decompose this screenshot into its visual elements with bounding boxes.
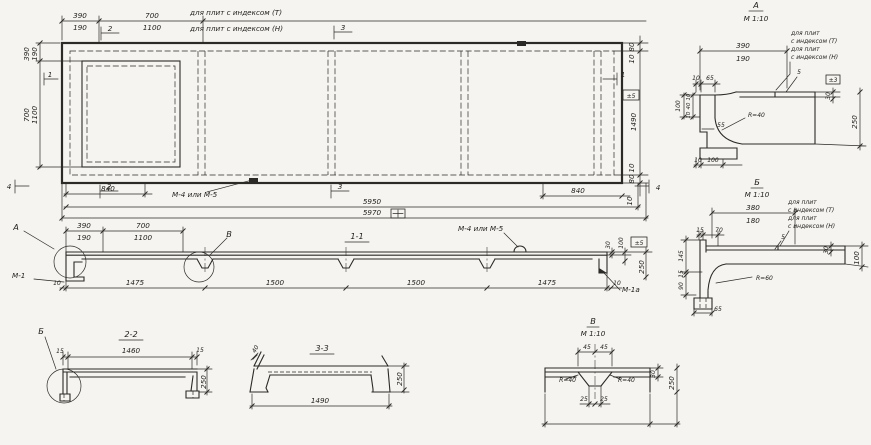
sec33-dim: 1490 <box>311 396 330 405</box>
detail-v-dims <box>542 348 680 427</box>
detA-dim: 100 <box>675 100 682 112</box>
detV-dim: 250 <box>667 376 676 390</box>
detB-dim: 180 <box>746 216 760 225</box>
detV-dim: 30 <box>650 370 657 378</box>
sec11-dim: 1475 <box>126 278 145 287</box>
sec11-dim: 190 <box>77 233 91 242</box>
plan-dim: 80 <box>627 174 636 184</box>
corner-mark-m1a <box>599 268 607 273</box>
detB-dim: 100 <box>852 251 861 265</box>
detV-radius: R=40 <box>618 377 635 384</box>
tolerance-value: ±5 <box>635 240 644 247</box>
sec22-dim: 1460 <box>122 346 141 355</box>
detB-dim: 15 <box>696 227 704 234</box>
section-flag-3: 3 <box>341 23 346 32</box>
plan-dim: 1490 <box>629 112 638 131</box>
note-for-plates: для плит <box>787 215 817 222</box>
detail-scale: М 1:10 <box>745 190 770 199</box>
detA-dim: 190 <box>736 54 750 63</box>
blueprint-page: 390 190 700 1100 для плит с индексом (Т)… <box>0 0 871 445</box>
note-index-n: с индексом (Н) <box>788 223 835 230</box>
section-flag-1: 1 <box>621 70 626 79</box>
callout-label-a: А <box>12 222 19 232</box>
detail-a: А М 1:10 390 190 для плит с индексом (Т)… <box>675 0 866 168</box>
detB-dim: 145 <box>678 250 685 262</box>
note-index-t: с индексом (Т) <box>788 207 834 214</box>
plan-slab-outline <box>62 43 622 183</box>
sec22-dim: 15 <box>196 347 204 354</box>
section-title: 2-2 <box>124 329 137 339</box>
detB-dim: 90 <box>678 282 685 290</box>
plan-dim: 840 <box>571 186 585 195</box>
mark-label-m1: М-1 <box>12 271 25 280</box>
detV-dim: 25 <box>580 396 588 403</box>
plan-view: 390 190 700 1100 для плит с индексом (Т)… <box>7 8 661 221</box>
detail-b: Б М 1:10 380 180 для плит с индексом (Т)… <box>678 177 868 316</box>
sec11-dim: 390 <box>77 221 91 230</box>
plan-dim: 1100 <box>30 105 39 124</box>
section-3-3-geometry <box>250 352 390 392</box>
detA-radius: R=40 <box>748 112 765 119</box>
lifting-loop-icon <box>517 41 526 46</box>
section-flag-4: 4 <box>7 182 12 191</box>
section-flag-4: 4 <box>656 183 661 192</box>
detA-dim: 100 <box>707 157 719 164</box>
sec11-dim: 100 <box>618 237 625 249</box>
plan-hidden-lines <box>70 51 614 175</box>
plan-dim: 10 <box>627 163 636 173</box>
sec11-dim: 30 <box>605 241 612 249</box>
detA-dim: 10 <box>686 93 692 100</box>
squared-plus-tolerance-icon <box>391 209 405 218</box>
note-index-n: для плит с индексом (Н) <box>189 24 283 33</box>
detB-dim: 5 <box>781 234 785 241</box>
sec11-dim: 10 <box>613 280 621 287</box>
section-1-1: 1-1 390 190 700 1100 А В М-4 или М-5 30 … <box>12 221 652 294</box>
plan-dim: 10 <box>625 196 634 206</box>
detA-dim: 55 <box>717 122 725 129</box>
callout-label-b: Б <box>38 326 44 336</box>
section-1-1-geometry <box>66 246 607 281</box>
detail-scale: М 1:10 <box>744 14 769 23</box>
detV-radius: R=40 <box>559 377 576 384</box>
sec22-dim: 15 <box>56 348 64 355</box>
detB-dim: 15 <box>678 270 685 278</box>
sec33-dim: 40 <box>251 344 261 354</box>
plan-dim: 5950 <box>363 197 382 206</box>
detA-dim: 30 <box>825 92 832 100</box>
detB-radius: R=60 <box>756 275 773 282</box>
plan-dim: 10 <box>627 54 636 64</box>
detA-dim: 390 <box>736 41 750 50</box>
detail-a-dims <box>680 46 866 168</box>
note-for-plates: для плит <box>790 30 820 37</box>
sec22-dim: 250 <box>199 375 208 389</box>
detA-dim: 40 <box>686 102 692 109</box>
detail-v: В М 1:10 45 45 R=40 R=40 25 25 30 250 <box>542 316 680 427</box>
sec11-dim: 1475 <box>538 278 557 287</box>
plan-opening-outline <box>82 61 180 167</box>
plan-dim: 390 <box>73 11 87 20</box>
detB-dim: 65 <box>714 306 722 313</box>
section-title: 3-3 <box>315 343 328 353</box>
detail-b-dims <box>681 208 868 316</box>
detail-callout-v <box>184 252 214 282</box>
detB-dim: 70 <box>715 227 723 234</box>
detV-dim: 45 <box>583 344 591 351</box>
tolerance-value: ±3 <box>829 77 838 84</box>
plan-dim: 80 <box>627 42 636 52</box>
detA-dim: 250 <box>850 115 859 129</box>
note-loop-mark: М-4 или М-5 <box>458 224 504 233</box>
sec11-dim: 250 <box>637 260 646 274</box>
callout-label-v: В <box>226 229 232 239</box>
section-flag-3: 3 <box>338 182 343 191</box>
plan-dim: 840 <box>101 184 115 193</box>
section-title: 1-1 <box>350 231 363 241</box>
section-flag-1: 1 <box>48 70 53 79</box>
note-for-plates: для плит <box>787 199 817 206</box>
note-loop-mark: М-4 или М-5 <box>172 190 218 199</box>
sec11-dim: 1500 <box>407 278 426 287</box>
detail-scale: М 1:10 <box>581 329 606 338</box>
detA-dim: 10 <box>694 157 702 164</box>
detA-dim: 10 <box>686 111 692 118</box>
mark-label-m1a: М-1а <box>622 285 640 294</box>
plan-dim: 1100 <box>143 23 162 32</box>
note-index-t: с индексом (Т) <box>791 38 837 45</box>
plan-dim: 700 <box>145 11 159 20</box>
note-index-n: с индексом (Н) <box>791 54 838 61</box>
plan-dim: 5970 <box>363 208 382 217</box>
sec11-dim: 1500 <box>266 278 285 287</box>
detA-dim: 65 <box>706 75 714 82</box>
detB-dim: 30 <box>823 246 830 254</box>
section-2-2: 2-2 Б 15 1460 15 250 <box>38 326 212 403</box>
section-flag-2: 2 <box>108 24 113 33</box>
detA-dim: 5 <box>797 69 801 76</box>
tolerance-value: ±5 <box>627 93 636 100</box>
detB-dim: 380 <box>746 203 760 212</box>
detail-title: В <box>590 316 596 326</box>
sec33-dim: 250 <box>395 372 404 386</box>
detail-title: А <box>752 0 759 10</box>
note-index-t: для плит с индексом (Т) <box>189 8 282 17</box>
blueprint-canvas: 390 190 700 1100 для плит с индексом (Т)… <box>0 0 871 445</box>
detV-dim: 25 <box>600 396 608 403</box>
plan-dim: 190 <box>73 23 87 32</box>
sec11-dim: 700 <box>136 221 150 230</box>
sec11-dim: 10 <box>53 280 61 287</box>
detV-dim: 45 <box>600 344 608 351</box>
sec11-dim: 1100 <box>134 233 153 242</box>
detail-title: Б <box>754 177 760 187</box>
detA-dim: 10 <box>692 75 700 82</box>
note-for-plates: для плит <box>790 46 820 53</box>
section-3-3: 3-3 40 1490 250 <box>250 343 410 409</box>
plan-dim: 190 <box>30 47 39 61</box>
